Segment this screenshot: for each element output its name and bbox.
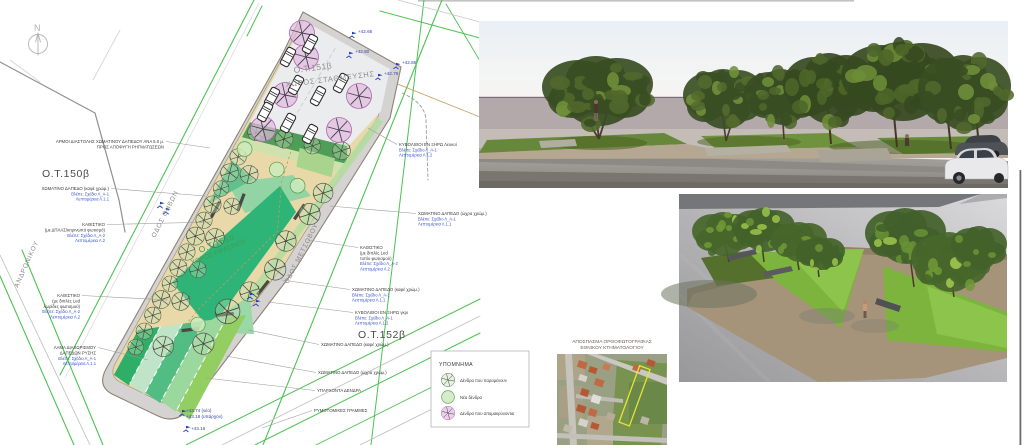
svg-text:+43.18 (υπάρχον): +43.18 (υπάρχον) [186,413,223,419]
svg-text:ΡΥΜΟΤΟΜΙΚΕΣ ΓΡΑΜΜΕΣ: ΡΥΜΟΤΟΜΙΚΕΣ ΓΡΑΜΜΕΣ [314,408,368,413]
svg-text:λωρίδες φωτισμού): λωρίδες φωτισμού) [44,304,81,309]
svg-text:ΧΩΜΑΤΙΝΟ ΔΑΠΕΔΟ (ώχρα χρώμ.): ΧΩΜΑΤΙΝΟ ΔΑΠΕΔΟ (ώχρα χρώμ.) [318,370,387,375]
svg-text:Λεπτομέρεια Λ.2: Λεπτομέρεια Λ.2 [50,314,81,319]
svg-text:τοπίο φωτισμού): τοπίο φωτισμού) [360,256,392,261]
svg-text:ΧΩΜΑΤΙΝΟ ΔΑΠΕΔΟ (ώχρα χρώμ.): ΧΩΜΑΤΙΝΟ ΔΑΠΕΔΟ (ώχρα χρώμ.) [418,211,487,216]
svg-text:ΑΡΜΟΙ ΔΙΑΣΤΟΛΗΣ ΧΩΜΑΤΙΝΟΥ ΔΑΠΕ: ΑΡΜΟΙ ΔΙΑΣΤΟΛΗΣ ΧΩΜΑΤΙΝΟΥ ΔΑΠΕΔΟΥ ΑΝΑ 5.… [56,139,164,144]
svg-text:+43.16: +43.16 [191,426,206,431]
svg-text:Νέα δένδρα: Νέα δένδρα [460,395,482,400]
svg-text:ΧΩΜΑΤΙΝΟ ΔΑΠΕΔΟ (καφέ χρώμ.): ΧΩΜΑΤΙΝΟ ΔΑΠΕΔΟ (καφέ χρώμ.) [41,186,109,191]
svg-text:(με διπλές Led: (με διπλές Led [360,250,388,255]
svg-text:Ο.Τ.152β: Ο.Τ.152β [358,329,406,341]
svg-text:Λεπτομέρεια Λ.2: Λεπτομέρεια Λ.2 [75,238,106,243]
svg-text:ΔΑΠΕΔΩΝ ΡΥΣΗΣ: ΔΑΠΕΔΩΝ ΡΥΣΗΣ [60,350,97,355]
svg-text:+43.74 (νέο): +43.74 (νέο) [186,407,212,413]
svg-text:ΧΩΜΑΤΙΝΟ ΔΑΠΕΔΟ (καφέ χρώμ.): ΧΩΜΑΤΙΝΟ ΔΑΠΕΔΟ (καφέ χρώμ.) [352,287,420,292]
svg-text:+42.85: +42.85 [402,60,417,65]
svg-text:Λεπτομέρεια Λ.1.1: Λεπτομέρεια Λ.1.1 [352,298,386,303]
svg-text:ΧΩΜΑΤΙΝΟ ΔΑΠΕΔΟ (καφέ χρώμ.): ΧΩΜΑΤΙΝΟ ΔΑΠΕΔΟ (καφέ χρώμ.) [321,342,389,347]
svg-text:ΚΑΘΙΣΤΙΚΟ: ΚΑΘΙΣΤΙΚΟ [360,245,383,250]
svg-text:ΑΠΟΣΠΑΣΜΑ ΟΡΘΟΦΩΤΟΓΡΑΦΙΑΣ: ΑΠΟΣΠΑΣΜΑ ΟΡΘΟΦΩΤΟΓΡΑΦΙΑΣ [572,339,652,345]
svg-text:ΥΠΑΡΧΟΝΤΑ ΔΕΝΔΡΑ: ΥΠΑΡΧΟΝΤΑ ΔΕΝΔΡΑ [317,388,361,393]
svg-text:Ο.Τ.150β: Ο.Τ.150β [42,168,90,180]
svg-text:ΚΑΘΙΣΤΙΚΟ: ΚΑΘΙΣΤΙΚΟ [57,293,80,298]
svg-text:+42.79: +42.79 [384,71,399,76]
svg-text:Λεπτομέρεια Λ.1.1: Λεπτομέρεια Λ.1.1 [76,197,110,202]
svg-text:Δένδρα που απομακρύνονται: Δένδρα που απομακρύνονται [460,411,514,416]
svg-text:N: N [34,23,41,33]
svg-text:ΥΠΟΜΝΗΜΑ: ΥΠΟΜΝΗΜΑ [439,362,473,368]
svg-text:+42.80: +42.80 [355,49,370,54]
svg-text:Λεπτομέρεια Λ.1.1: Λεπτομέρεια Λ.1.1 [63,361,97,366]
svg-text:ΕΘΝΙΚΟΥ ΚΤΗΜΑΤΟΛΟΓΙΟΥ: ΕΘΝΙΚΟΥ ΚΤΗΜΑΤΟΛΟΓΙΟΥ [580,345,644,351]
svg-text:ΚΑΘΙΣΤΙΚΟ: ΚΑΘΙΣΤΙΚΟ [82,222,105,227]
svg-text:ΚΥΒΟΛΙΘΟΙ ΕΝ ΞΗΡΩ Λευκοί: ΚΥΒΟΛΙΘΟΙ ΕΝ ΞΗΡΩ Λευκοί [399,142,457,147]
svg-text:ΠΡΟΣ ΑΠΟΦΥΓΗ ΡΗΓΜΑΤΩΣΕΩΝ: ΠΡΟΣ ΑΠΟΦΥΓΗ ΡΗΓΜΑΤΩΣΕΩΝ [97,144,164,149]
svg-text:Λεπτομέρεια Λ.2: Λεπτομέρεια Λ.2 [360,266,391,271]
svg-text:Λεπτομέρεια Λ.1.2: Λεπτομέρεια Λ.1.2 [355,321,389,326]
svg-text:Λεπτομέρεια Λ.1.2: Λεπτομέρεια Λ.1.2 [399,153,433,158]
svg-text:(με διπλές Led: (με διπλές Led [52,298,80,303]
svg-text:ΛΑΜΑ ΔΙΑΧΩΡΙΣΜΟΥ: ΛΑΜΑ ΔΙΑΧΩΡΙΣΜΟΥ [54,345,96,350]
svg-text:+42.66: +42.66 [358,29,373,34]
svg-text:(με ΔΠΛΑΣ/κιτρινωπό φωτισμό): (με ΔΠΛΑΣ/κιτρινωπό φωτισμό) [45,227,106,232]
svg-text:Λεπτομέρεια Λ.1.1: Λεπτομέρεια Λ.1.1 [418,222,452,227]
svg-text:Δένδρα που παραμένουν: Δένδρα που παραμένουν [460,378,507,383]
svg-text:ΚΥΒΟΛΙΘΟΙ ΕΝ ΞΗΡΩ γκρι: ΚΥΒΟΛΙΘΟΙ ΕΝ ΞΗΡΩ γκρι [355,310,408,315]
